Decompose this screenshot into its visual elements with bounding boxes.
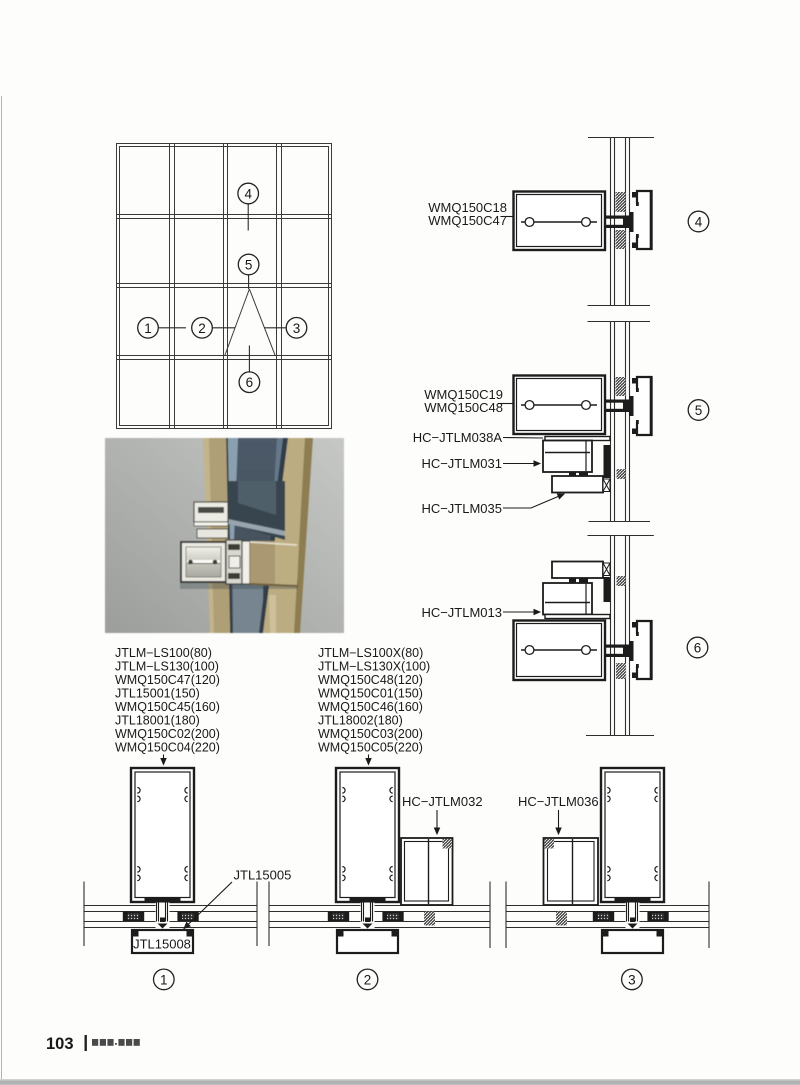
svg-text:JTL18002(180): JTL18002(180) <box>318 714 403 728</box>
svg-text:WMQ150C02(200): WMQ150C02(200) <box>115 727 220 741</box>
svg-text:JTLM−LS100(80): JTLM−LS100(80) <box>115 646 212 660</box>
svg-text:WMQ150C48(120): WMQ150C48(120) <box>318 673 423 687</box>
svg-text:1: 1 <box>160 972 168 987</box>
svg-text:3: 3 <box>293 321 301 336</box>
svg-text:WMQ150C47: WMQ150C47 <box>428 213 507 228</box>
svg-text:WMQ150C04(220): WMQ150C04(220) <box>115 741 220 755</box>
svg-text:WMQ150C46(160): WMQ150C46(160) <box>318 700 423 714</box>
svg-text:4: 4 <box>695 215 703 230</box>
svg-text:4: 4 <box>244 187 252 202</box>
svg-text:HC−JTLM013: HC−JTLM013 <box>421 605 502 620</box>
svg-text:JTL15008: JTL15008 <box>133 937 191 952</box>
svg-text:WMQ150C45(160): WMQ150C45(160) <box>115 700 220 714</box>
svg-text:103: 103 <box>46 1035 74 1053</box>
svg-text:JTLM−LS130X(100): JTLM−LS130X(100) <box>318 660 430 674</box>
svg-text:2: 2 <box>364 972 372 987</box>
svg-text:HC−JTLM032: HC−JTLM032 <box>402 794 483 809</box>
svg-text:WMQ150C03(200): WMQ150C03(200) <box>318 727 423 741</box>
svg-text:WMQ150C05(220): WMQ150C05(220) <box>318 741 423 755</box>
svg-text:JTL15001(150): JTL15001(150) <box>115 687 200 701</box>
svg-text:JTL18001(180): JTL18001(180) <box>115 714 200 728</box>
svg-text:6: 6 <box>694 641 702 656</box>
svg-text:6: 6 <box>246 375 254 390</box>
svg-text:HC−JTLM031: HC−JTLM031 <box>421 456 502 471</box>
svg-text:3: 3 <box>628 972 636 987</box>
svg-text:HC−JTLM038A: HC−JTLM038A <box>413 430 503 445</box>
svg-text:JTL15005: JTL15005 <box>234 868 292 883</box>
svg-text:HC−JTLM036: HC−JTLM036 <box>518 794 599 809</box>
svg-text:2: 2 <box>198 321 206 336</box>
svg-text:5: 5 <box>695 403 703 418</box>
svg-text:5: 5 <box>245 258 253 273</box>
svg-text:HC−JTLM035: HC−JTLM035 <box>421 501 502 516</box>
svg-text:JTLM−LS100X(80): JTLM−LS100X(80) <box>318 646 423 660</box>
svg-text:WMQ150C47(120): WMQ150C47(120) <box>115 673 220 687</box>
svg-text:JTLM−LS130(100): JTLM−LS130(100) <box>115 660 219 674</box>
svg-text:WMQ150C01(150): WMQ150C01(150) <box>318 687 423 701</box>
svg-text:1: 1 <box>144 321 152 336</box>
svg-text:WMQ150C48: WMQ150C48 <box>424 400 503 415</box>
